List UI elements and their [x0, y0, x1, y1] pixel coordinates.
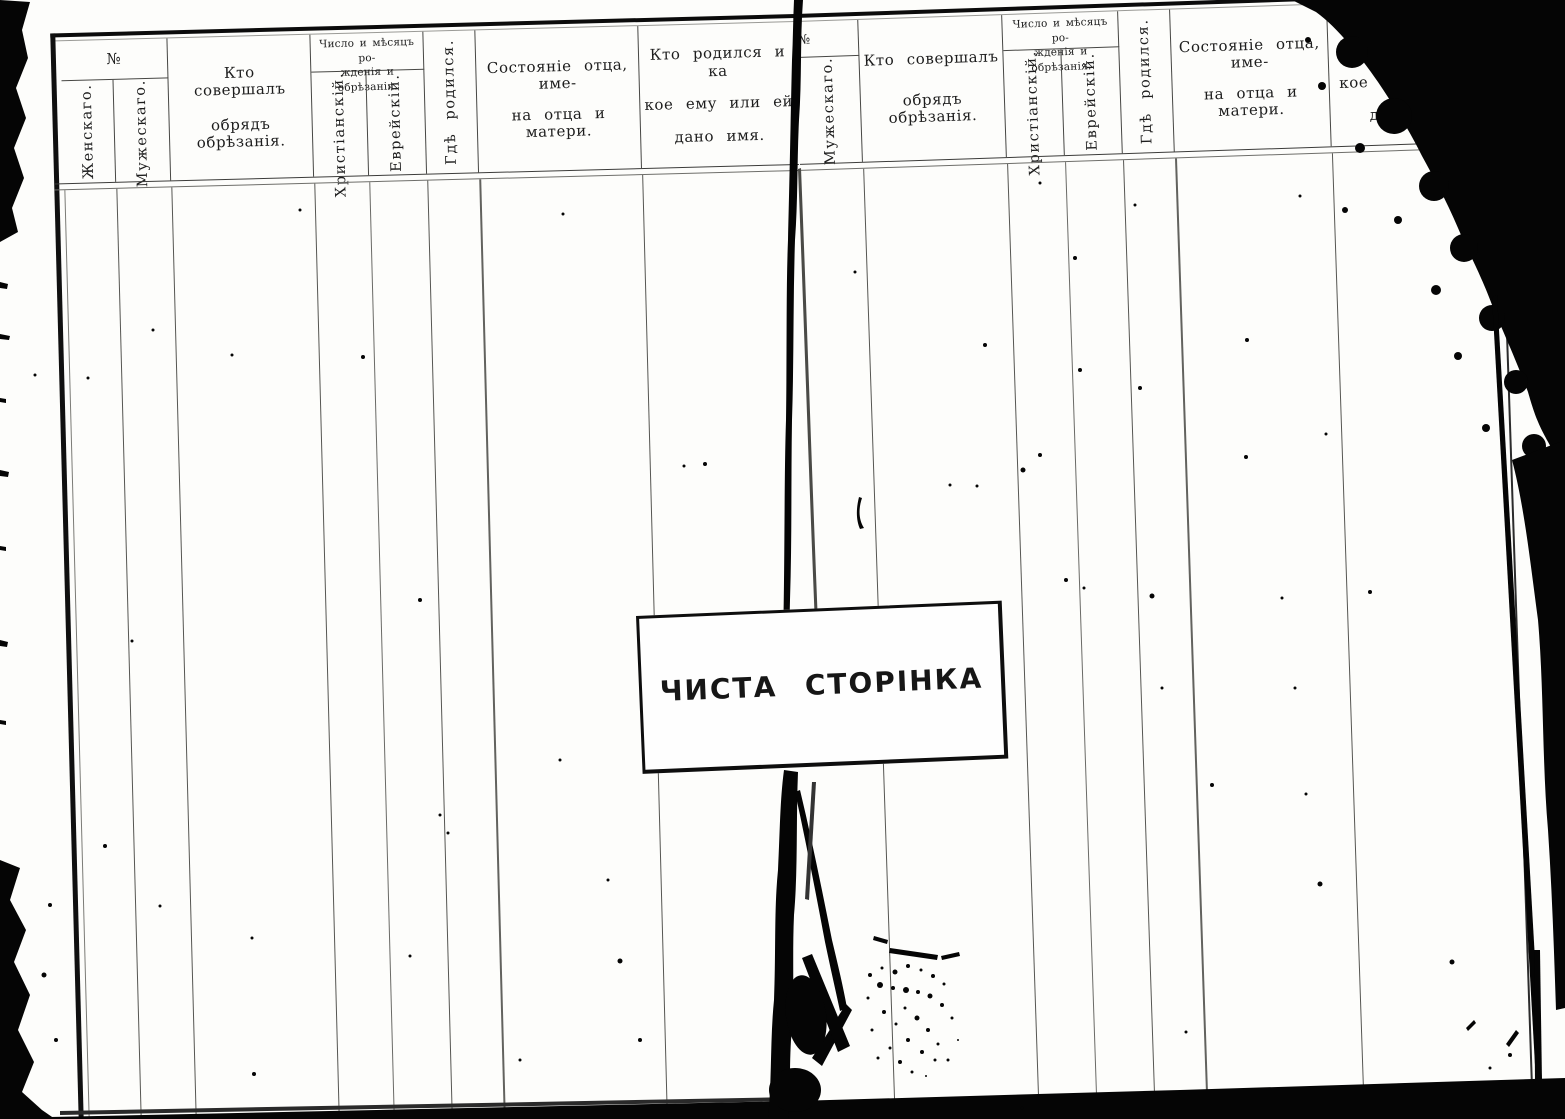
who-born-line1: Кто родился и ка: [641, 43, 795, 81]
left-header-where-born: Гдѣ родился.: [423, 30, 479, 173]
right-header-male-count: Мужескаго.: [796, 56, 862, 164]
jewish-label: Еврейскій.: [387, 73, 406, 172]
who-born-line2: кое ему или ей: [1339, 70, 1488, 92]
left-scan-edge-bottom: [0, 860, 55, 1119]
date-group-line1: Число и мѣсяцъ ро-: [1002, 14, 1118, 47]
left-header-date-group: Число и мѣсяцъ ро- жденія и обрѣзанія.: [310, 32, 424, 73]
column-rule: [171, 187, 197, 1119]
column-rule: [1123, 160, 1155, 1095]
left-header-jewish-date: Еврейскій.: [366, 70, 427, 175]
column-rule: [369, 182, 395, 1119]
left-male-label: Мужескаго.: [132, 79, 151, 187]
right-header-who-performed: Кто совершалъ обрядъ обрѣзанія.: [858, 15, 1007, 162]
right-header-christian-date: Христіанскій.: [1003, 49, 1064, 157]
right-header-father-status: Состояніе отца, име- на отца и матери.: [1170, 4, 1332, 151]
scanned-register-spread: № Женскаго. Мужескаго. Кто совершалъ обр…: [0, 0, 1565, 1119]
left-header-who-performed: Кто совершалъ обрядъ обрѣзанія.: [167, 35, 314, 181]
left-number-group-label: №: [106, 51, 121, 69]
right-header-jewish-date: Еврейскій.: [1061, 47, 1122, 155]
blank-page-slip-label: ЧИСТА СТОРІНКА: [659, 662, 984, 709]
left-female-label: Женскаго.: [79, 83, 98, 179]
who-born-line2: кое ему или ей: [644, 93, 793, 114]
column-rule: [314, 184, 340, 1119]
date-group-line1: Число и мѣсяцъ ро-: [310, 35, 423, 67]
left-header-male-count: Мужескаго.: [113, 78, 171, 181]
right-header-date-group: Число и мѣсяцъ ро- жденія и обрѣзанія.: [1002, 11, 1119, 51]
column-rule: [1065, 162, 1097, 1097]
column-rule: [1332, 153, 1364, 1088]
right-number-group-label: №: [798, 33, 812, 48]
left-header-who-born: Кто родился и ка кое ему или ей дано имя…: [638, 22, 799, 168]
left-header-father-status: Состояніе отца, име- на отца и матери.: [475, 26, 642, 172]
who-born-line3: дано имя.: [674, 126, 765, 146]
column-rule: [1175, 158, 1208, 1093]
column-rule: [116, 189, 142, 1119]
who-born-line3: дано имя.: [1369, 104, 1460, 124]
column-rule: [427, 181, 453, 1119]
blank-page-slip: ЧИСТА СТОРІНКА: [636, 601, 1008, 774]
left-header-number-group: №: [60, 38, 168, 81]
father-status-line1: Состояніе отца, име-: [1175, 34, 1324, 73]
left-page-left-frame: [50, 33, 84, 1119]
who-born-line1: Кто родился и ка: [1330, 20, 1495, 60]
right-header-number-group: №: [795, 20, 859, 58]
father-status-line2: на отца и матери.: [1177, 82, 1326, 121]
right-page-right-frame: [1495, 0, 1533, 1082]
who-performed-line2: обрядъ обрѣзанія.: [865, 89, 1001, 128]
right-male-label: Мужескаго.: [819, 57, 839, 166]
left-page: № Женскаго. Мужескаго. Кто совершалъ обр…: [50, 14, 823, 1119]
left-header-christian-date: Христіанскій.: [311, 71, 369, 176]
who-performed-line1: Кто совершалъ: [863, 49, 998, 71]
jewish-label: Еврейскій.: [1082, 52, 1102, 151]
who-performed-line2: обрядъ обрѣзанія.: [174, 115, 309, 153]
column-rule: [479, 179, 506, 1118]
right-page: № Мужескаго. Кто совершалъ обрядъ обрѣза…: [795, 0, 1565, 1105]
left-header-female-count: Женскаго.: [62, 80, 117, 183]
who-performed-line1: Кто совершалъ: [172, 62, 307, 100]
left-scan-edge-top: [0, 0, 30, 242]
father-status-line2: на отца и матери.: [481, 104, 636, 143]
where-born-label: Гдѣ родился.: [441, 39, 461, 165]
column-rule: [1007, 164, 1039, 1099]
father-status-line1: Состояніе отца, име-: [480, 56, 635, 95]
christian-label: Христіанскій.: [330, 72, 350, 198]
right-header-who-born: Кто родился и ка кое ему или ей дано имя…: [1327, 0, 1500, 146]
where-born-label: Гдѣ родился.: [1136, 18, 1157, 144]
right-header-where-born: Гдѣ родился.: [1118, 10, 1175, 154]
